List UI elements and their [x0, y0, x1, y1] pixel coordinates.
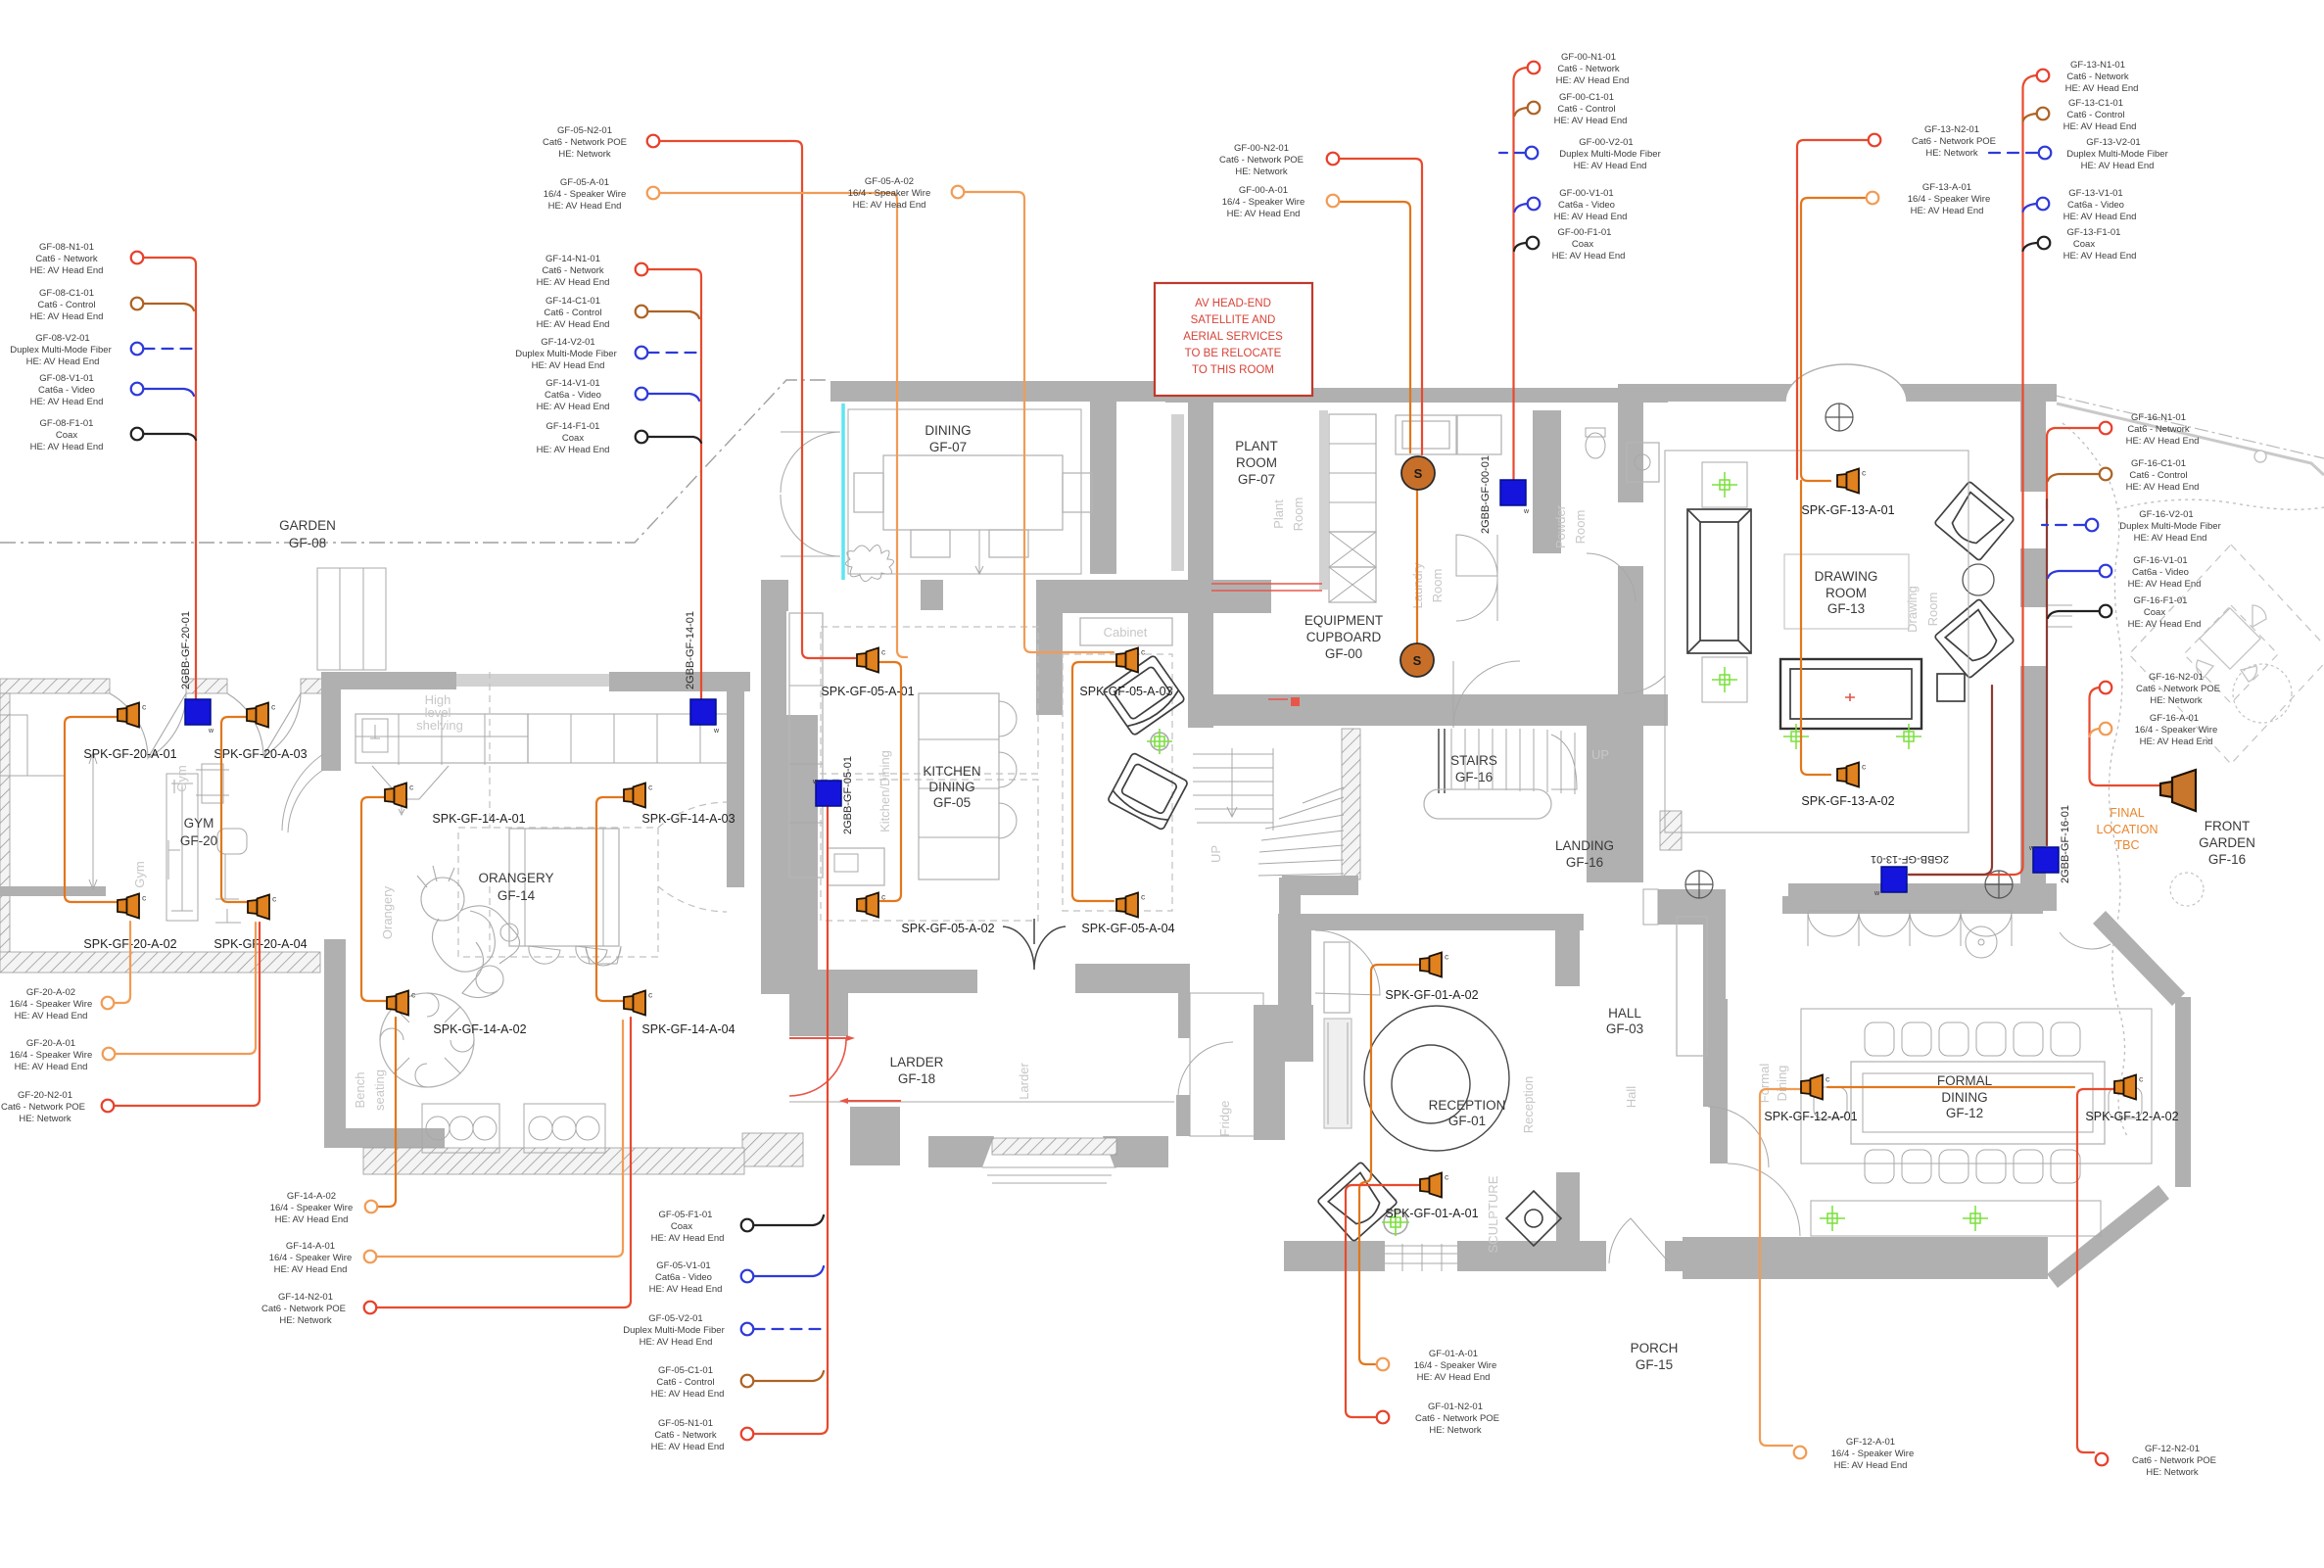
svg-text:TO BE RELOCATE: TO BE RELOCATE: [1185, 348, 1282, 359]
svg-text:shelving: shelving: [416, 718, 463, 733]
svg-text:GF-20-A-02: GF-20-A-02: [26, 987, 75, 998]
svg-text:HE: AV Head End: HE: AV Head End: [2140, 736, 2213, 747]
svg-text:HE: AV Head End: HE: AV Head End: [537, 277, 610, 288]
svg-text:Gym: Gym: [174, 765, 189, 791]
svg-text:SPK-GF-13-A-02: SPK-GF-13-A-02: [1801, 794, 1894, 808]
svg-text:Cat6 - Network POE: Cat6 - Network POE: [1219, 155, 1304, 166]
svg-text:SPK-GF-20-A-01: SPK-GF-20-A-01: [83, 747, 176, 761]
svg-text:Plant: Plant: [1271, 499, 1286, 529]
svg-text:HE: AV Head End: HE: AV Head End: [532, 360, 605, 371]
svg-text:S: S: [1414, 466, 1423, 481]
svg-text:SPK-GF-05-A-02: SPK-GF-05-A-02: [901, 922, 994, 935]
svg-text:GF-05-A-01: GF-05-A-01: [560, 177, 609, 188]
svg-text:GF-15: GF-15: [1636, 1357, 1673, 1372]
svg-text:HE: AV Head End: HE: AV Head End: [275, 1214, 349, 1225]
svg-text:HE: AV Head End: HE: AV Head End: [649, 1284, 723, 1295]
svg-text:GF-13-C1-01: GF-13-C1-01: [2068, 98, 2123, 109]
svg-text:Hall: Hall: [1624, 1086, 1638, 1109]
svg-text:GF-16: GF-16: [1566, 855, 1603, 870]
svg-text:GF-00-V2-01: GF-00-V2-01: [1579, 137, 1633, 148]
svg-text:ROOM: ROOM: [1236, 455, 1277, 470]
svg-text:2GBB-GF-14-01: 2GBB-GF-14-01: [685, 611, 696, 689]
svg-text:16/4 - Speaker Wire: 16/4 - Speaker Wire: [1908, 194, 1990, 205]
svg-text:TO THIS ROOM: TO THIS ROOM: [1192, 364, 1274, 376]
svg-text:ORANGERY: ORANGERY: [478, 871, 553, 885]
svg-text:GF-16-N2-01: GF-16-N2-01: [2149, 672, 2204, 683]
svg-text:HE: AV Head End: HE: AV Head End: [30, 311, 104, 322]
svg-text:Cat6 - Network POE: Cat6 - Network POE: [2132, 1455, 2216, 1466]
svg-text:HE: AV Head End: HE: AV Head End: [1554, 116, 1628, 126]
svg-text:Cat6a - Video: Cat6a - Video: [1558, 200, 1615, 211]
svg-text:GF-12-A-01: GF-12-A-01: [1846, 1437, 1895, 1448]
svg-text:GF-05-N1-01: GF-05-N1-01: [658, 1418, 713, 1429]
svg-text:Cat6 - Network POE: Cat6 - Network POE: [543, 137, 627, 148]
svg-text:GF-20: GF-20: [180, 833, 217, 848]
svg-text:GF-13-N1-01: GF-13-N1-01: [2070, 60, 2125, 71]
svg-text:HE: AV Head End: HE: AV Head End: [853, 200, 926, 211]
svg-text:GF-00-C1-01: GF-00-C1-01: [1559, 92, 1614, 103]
svg-text:HE: AV Head End: HE: AV Head End: [30, 265, 104, 276]
svg-text:HE: AV Head End: HE: AV Head End: [2126, 482, 2200, 493]
svg-text:2GBB-GF-00-01: 2GBB-GF-00-01: [1480, 455, 1492, 534]
svg-text:HE: AV Head End: HE: AV Head End: [30, 397, 104, 407]
svg-text:TBC: TBC: [2115, 838, 2140, 852]
svg-text:Duplex Multi-Mode Fiber: Duplex Multi-Mode Fiber: [2119, 521, 2220, 532]
svg-text:SPK-GF-01-A-01: SPK-GF-01-A-01: [1385, 1207, 1478, 1220]
svg-text:Cat6 - Network POE: Cat6 - Network POE: [1, 1102, 85, 1113]
svg-text:Cabinet: Cabinet: [1104, 625, 1148, 640]
svg-text:GF-16-A-01: GF-16-A-01: [2150, 713, 2199, 724]
svg-text:GF-13-V2-01: GF-13-V2-01: [2086, 137, 2140, 148]
svg-text:Fridge: Fridge: [1217, 1101, 1232, 1137]
svg-text:HE: AV Head End: HE: AV Head End: [537, 319, 610, 330]
svg-text:HE: AV Head End: HE: AV Head End: [1911, 206, 1984, 216]
svg-text:Cat6 - Network: Cat6 - Network: [542, 265, 604, 276]
svg-text:GF-16-N1-01: GF-16-N1-01: [2131, 412, 2186, 423]
svg-text:GF-00-A-01: GF-00-A-01: [1239, 185, 1288, 196]
svg-text:GF-00-V1-01: GF-00-V1-01: [1559, 188, 1613, 199]
svg-text:GF-08-F1-01: GF-08-F1-01: [40, 418, 94, 429]
svg-text:w: w: [812, 779, 819, 785]
svg-text:Coax: Coax: [671, 1221, 692, 1232]
svg-text:GF-12-N2-01: GF-12-N2-01: [2145, 1444, 2200, 1454]
svg-text:HE: Network: HE: Network: [279, 1315, 332, 1326]
svg-text:SPK-GF-12-A-02: SPK-GF-12-A-02: [2085, 1110, 2178, 1123]
svg-text:GF-16: GF-16: [1455, 770, 1493, 784]
svg-text:Coax: Coax: [1572, 239, 1593, 250]
svg-text:16/4 - Speaker Wire: 16/4 - Speaker Wire: [544, 189, 626, 200]
svg-text:SPK-GF-01-A-02: SPK-GF-01-A-02: [1385, 988, 1478, 1002]
svg-text:HE: AV Head End: HE: AV Head End: [2128, 619, 2202, 630]
svg-text:w: w: [1523, 508, 1530, 515]
svg-text:HE: AV Head End: HE: AV Head End: [1574, 161, 1647, 171]
svg-text:Cat6 - Network: Cat6 - Network: [2066, 71, 2129, 82]
svg-text:LANDING: LANDING: [1555, 838, 1614, 853]
svg-text:PLANT: PLANT: [1235, 439, 1278, 453]
svg-text:HE: AV Head End: HE: AV Head End: [1552, 251, 1626, 261]
svg-text:w: w: [2028, 845, 2035, 852]
svg-text:Cat6 - Network: Cat6 - Network: [654, 1430, 717, 1441]
svg-text:Bench: Bench: [353, 1072, 367, 1109]
svg-text:HE: AV Head End: HE: AV Head End: [2063, 212, 2137, 222]
svg-text:GF-16-F1-01: GF-16-F1-01: [2134, 595, 2188, 606]
svg-text:HE: AV Head End: HE: AV Head End: [26, 356, 100, 367]
svg-text:seating: seating: [372, 1069, 387, 1111]
svg-text:GF-08-C1-01: GF-08-C1-01: [39, 288, 94, 299]
svg-text:HE: AV Head End: HE: AV Head End: [1417, 1372, 1491, 1383]
svg-text:GF-07: GF-07: [1238, 472, 1275, 487]
svg-text:GF-05-N2-01: GF-05-N2-01: [557, 125, 612, 136]
svg-text:GF-14: GF-14: [498, 888, 536, 903]
svg-text:GF-14-N2-01: GF-14-N2-01: [278, 1292, 333, 1303]
svg-text:Duplex Multi-Mode Fiber: Duplex Multi-Mode Fiber: [623, 1325, 724, 1336]
svg-text:GF-05-A-02: GF-05-A-02: [865, 176, 914, 187]
svg-text:HALL: HALL: [1608, 1006, 1641, 1021]
svg-text:GF-14-C1-01: GF-14-C1-01: [545, 296, 600, 307]
svg-text:Coax: Coax: [2073, 239, 2095, 250]
svg-text:Coax: Coax: [2144, 607, 2165, 618]
svg-text:Cat6 - Network POE: Cat6 - Network POE: [1912, 136, 1996, 147]
svg-text:GF-12: GF-12: [1946, 1106, 1983, 1120]
svg-text:LOCATION: LOCATION: [2097, 823, 2158, 836]
svg-text:AV HEAD-END: AV HEAD-END: [1195, 298, 1271, 309]
svg-text:GF-14-N1-01: GF-14-N1-01: [545, 254, 600, 264]
svg-text:GF-05-C1-01: GF-05-C1-01: [658, 1365, 713, 1376]
svg-text:DINING: DINING: [928, 780, 974, 794]
svg-text:GF-03: GF-03: [1606, 1022, 1643, 1036]
svg-text:SATELLITE AND: SATELLITE AND: [1191, 314, 1276, 326]
svg-text:HE: Network: HE: Network: [2150, 695, 2203, 706]
svg-text:Room: Room: [1925, 593, 1940, 627]
svg-text:HE: AV Head End: HE: AV Head End: [1834, 1460, 1908, 1471]
svg-text:Cat6 - Network: Cat6 - Network: [2127, 424, 2190, 435]
svg-text:Room: Room: [1291, 498, 1305, 532]
svg-text:Gym: Gym: [132, 861, 147, 887]
svg-text:DRAWING: DRAWING: [1815, 569, 1878, 584]
svg-text:2GBB-GF-16-01: 2GBB-GF-16-01: [2060, 805, 2071, 883]
svg-text:Cat6 - Network: Cat6 - Network: [1557, 64, 1620, 74]
svg-text:LARDER: LARDER: [890, 1055, 944, 1069]
svg-text:GF-01-A-01: GF-01-A-01: [1429, 1349, 1478, 1359]
svg-text:GF-14-F1-01: GF-14-F1-01: [546, 421, 600, 432]
svg-text:HE: AV Head End: HE: AV Head End: [651, 1389, 725, 1400]
svg-text:DINING: DINING: [1941, 1090, 1987, 1105]
svg-text:DINING: DINING: [925, 423, 971, 438]
svg-text:GF-08-N1-01: GF-08-N1-01: [39, 242, 94, 253]
svg-text:16/4 - Speaker Wire: 16/4 - Speaker Wire: [270, 1203, 353, 1213]
svg-text:16/4 - Speaker Wire: 16/4 - Speaker Wire: [269, 1253, 352, 1263]
svg-text:FRONT: FRONT: [2205, 819, 2251, 833]
svg-text:GF-16: GF-16: [2208, 852, 2246, 867]
svg-text:GF-14-V2-01: GF-14-V2-01: [541, 337, 594, 348]
svg-text:GF-08-V2-01: GF-08-V2-01: [35, 333, 89, 344]
svg-text:GF-20-N2-01: GF-20-N2-01: [18, 1090, 72, 1101]
svg-text:HE: Network: HE: Network: [2146, 1467, 2199, 1478]
svg-text:GF-07: GF-07: [929, 440, 967, 454]
svg-text:16/4 - Speaker Wire: 16/4 - Speaker Wire: [1414, 1360, 1496, 1371]
svg-text:Duplex Multi-Mode Fiber: Duplex Multi-Mode Fiber: [515, 349, 616, 359]
svg-text:KITCHEN: KITCHEN: [923, 764, 980, 779]
svg-text:Orangery: Orangery: [380, 885, 395, 939]
svg-text:Cat6 - Control: Cat6 - Control: [2129, 470, 2187, 481]
svg-text:GF-16-C1-01: GF-16-C1-01: [2131, 458, 2186, 469]
svg-text:GARDEN: GARDEN: [279, 518, 336, 533]
svg-text:GF-13: GF-13: [1827, 601, 1865, 616]
svg-text:16/4 - Speaker Wire: 16/4 - Speaker Wire: [10, 1050, 92, 1061]
svg-text:16/4 - Speaker Wire: 16/4 - Speaker Wire: [848, 188, 930, 199]
svg-text:HE: AV Head End: HE: AV Head End: [15, 1011, 88, 1022]
svg-text:GF-13-A-01: GF-13-A-01: [1922, 182, 1971, 193]
svg-text:Room: Room: [1573, 510, 1588, 545]
svg-text:HE: Network: HE: Network: [1925, 148, 1978, 159]
svg-text:GF-13-F1-01: GF-13-F1-01: [2067, 227, 2121, 238]
svg-text:HE: AV Head End: HE: AV Head End: [1554, 212, 1628, 222]
svg-text:ROOM: ROOM: [1826, 586, 1867, 600]
svg-text:HE: AV Head End: HE: AV Head End: [2065, 83, 2139, 94]
svg-text:HE: AV Head End: HE: AV Head End: [2063, 121, 2137, 132]
svg-text:HE: AV Head End: HE: AV Head End: [548, 201, 622, 212]
svg-text:HE: Network: HE: Network: [1235, 166, 1288, 177]
svg-text:GF-16-V1-01: GF-16-V1-01: [2133, 555, 2187, 566]
svg-text:FORMAL: FORMAL: [1937, 1073, 1993, 1088]
svg-text:SPK-GF-14-A-04: SPK-GF-14-A-04: [641, 1022, 735, 1036]
svg-text:GARDEN: GARDEN: [2199, 835, 2255, 850]
svg-text:Cat6 - Network POE: Cat6 - Network POE: [1415, 1413, 1499, 1424]
svg-text:Cat6a - Video: Cat6a - Video: [545, 390, 601, 401]
svg-text:Cat6a - Video: Cat6a - Video: [2067, 200, 2124, 211]
svg-text:Room: Room: [1430, 569, 1445, 603]
svg-text:STAIRS: STAIRS: [1450, 753, 1497, 768]
svg-text:Coax: Coax: [56, 430, 77, 441]
svg-text:2GBB-GF-05-01: 2GBB-GF-05-01: [842, 756, 854, 834]
svg-text:GF-00-N1-01: GF-00-N1-01: [1561, 52, 1616, 63]
svg-text:Cat6 - Control: Cat6 - Control: [1557, 104, 1615, 115]
svg-text:HE: AV Head End: HE: AV Head End: [2128, 579, 2202, 590]
svg-text:HE: AV Head End: HE: AV Head End: [1227, 209, 1301, 219]
svg-text:HE: AV Head End: HE: AV Head End: [651, 1233, 725, 1244]
svg-text:GF-16-V2-01: GF-16-V2-01: [2139, 509, 2193, 520]
svg-text:16/4 - Speaker Wire: 16/4 - Speaker Wire: [2135, 725, 2217, 736]
svg-text:SPK-GF-14-A-02: SPK-GF-14-A-02: [433, 1022, 526, 1036]
svg-text:HE: AV Head End: HE: AV Head End: [2081, 161, 2155, 171]
svg-text:HE: AV Head End: HE: AV Head End: [2063, 251, 2137, 261]
svg-text:GF-18: GF-18: [898, 1071, 935, 1086]
svg-text:HE: AV Head End: HE: AV Head End: [651, 1442, 725, 1452]
svg-text:HE: Network: HE: Network: [19, 1114, 71, 1124]
svg-text:GYM: GYM: [184, 816, 214, 831]
svg-text:HE: AV Head End: HE: AV Head End: [537, 402, 610, 412]
svg-text:FINAL: FINAL: [2110, 806, 2144, 820]
svg-text:Cat6 - Control: Cat6 - Control: [544, 308, 601, 318]
svg-text:GF-13-V1-01: GF-13-V1-01: [2068, 188, 2122, 199]
svg-text:HE: AV Head End: HE: AV Head End: [30, 442, 104, 452]
svg-text:HE: AV Head End: HE: AV Head End: [15, 1062, 88, 1072]
svg-text:HE: AV Head End: HE: AV Head End: [274, 1264, 348, 1275]
svg-text:GF-05-V2-01: GF-05-V2-01: [648, 1313, 702, 1324]
svg-text:RECEPTION: RECEPTION: [1429, 1098, 1506, 1113]
svg-text:SPK-GF-05-A-04: SPK-GF-05-A-04: [1081, 922, 1174, 935]
svg-text:Dining: Dining: [1775, 1066, 1789, 1102]
svg-text:Duplex Multi-Mode Fiber: Duplex Multi-Mode Fiber: [1559, 149, 1660, 160]
svg-text:PORCH: PORCH: [1631, 1341, 1679, 1355]
svg-text:GF-08-V1-01: GF-08-V1-01: [39, 373, 93, 384]
svg-text:UP: UP: [1209, 845, 1223, 863]
svg-text:AERIAL SERVICES: AERIAL SERVICES: [1183, 331, 1283, 343]
svg-text:UP: UP: [1591, 747, 1609, 762]
svg-text:SPK-GF-12-A-01: SPK-GF-12-A-01: [1764, 1110, 1857, 1123]
svg-text:2GBB-GF-13-01: 2GBB-GF-13-01: [1871, 853, 1949, 865]
svg-text:Cat6a - Video: Cat6a - Video: [655, 1272, 712, 1283]
svg-text:Drawing: Drawing: [1905, 586, 1920, 633]
svg-text:w: w: [713, 728, 720, 735]
svg-text:Cat6a - Video: Cat6a - Video: [2132, 567, 2189, 578]
svg-text:GF-01: GF-01: [1448, 1114, 1486, 1128]
svg-text:Kitchen/Dining: Kitchen/Dining: [877, 750, 892, 832]
svg-text:HE: AV Head End: HE: AV Head End: [1556, 75, 1630, 86]
svg-text:GF-14-A-02: GF-14-A-02: [287, 1191, 336, 1202]
svg-text:HE: AV Head End: HE: AV Head End: [2126, 436, 2200, 447]
svg-text:Duplex Multi-Mode Fiber: Duplex Multi-Mode Fiber: [10, 345, 111, 356]
svg-text:HE: AV Head End: HE: AV Head End: [640, 1337, 713, 1348]
svg-text:GF-00-N2-01: GF-00-N2-01: [1234, 143, 1289, 154]
svg-text:Cat6 - Control: Cat6 - Control: [2066, 110, 2124, 120]
svg-text:S: S: [1413, 653, 1422, 668]
svg-text:GF-05-F1-01: GF-05-F1-01: [659, 1210, 713, 1220]
svg-text:HE: AV Head End: HE: AV Head End: [2134, 533, 2207, 544]
svg-text:Coax: Coax: [562, 433, 584, 444]
svg-text:w: w: [208, 728, 214, 735]
svg-text:GF-13-N2-01: GF-13-N2-01: [1924, 124, 1979, 135]
svg-text:GF-14-V1-01: GF-14-V1-01: [545, 378, 599, 389]
svg-text:Larder: Larder: [1017, 1063, 1031, 1100]
svg-text:16/4 - Speaker Wire: 16/4 - Speaker Wire: [1831, 1449, 1914, 1459]
svg-text:SPK-GF-20-A-03: SPK-GF-20-A-03: [213, 747, 307, 761]
svg-text:Cat6 - Control: Cat6 - Control: [656, 1377, 714, 1388]
svg-text:w: w: [1873, 890, 1880, 897]
svg-text:GF-01-N2-01: GF-01-N2-01: [1428, 1402, 1483, 1412]
svg-text:Cat6 - Network: Cat6 - Network: [35, 254, 98, 264]
svg-text:GF-14-A-01: GF-14-A-01: [286, 1241, 335, 1252]
svg-text:Powder: Powder: [1553, 504, 1568, 548]
svg-text:2GBB-GF-20-01: 2GBB-GF-20-01: [180, 611, 192, 689]
svg-text:16/4 - Speaker Wire: 16/4 - Speaker Wire: [10, 999, 92, 1010]
svg-text:HE: Network: HE: Network: [558, 149, 611, 160]
svg-text:CUPBOARD: CUPBOARD: [1306, 630, 1382, 644]
svg-text:SPK-GF-14-A-03: SPK-GF-14-A-03: [641, 812, 735, 826]
svg-text:HE: AV Head End: HE: AV Head End: [537, 445, 610, 455]
svg-text:Reception: Reception: [1521, 1076, 1536, 1134]
svg-text:16/4 - Speaker Wire: 16/4 - Speaker Wire: [1222, 197, 1304, 208]
svg-text:EQUIPMENT: EQUIPMENT: [1304, 613, 1383, 628]
svg-text:Cat6 - Network POE: Cat6 - Network POE: [2136, 684, 2220, 694]
svg-text:Cat6 - Network POE: Cat6 - Network POE: [261, 1304, 346, 1314]
svg-text:GF-05: GF-05: [933, 795, 971, 810]
svg-text:Cat6 - Control: Cat6 - Control: [37, 300, 95, 310]
svg-text:GF-05-V1-01: GF-05-V1-01: [656, 1260, 710, 1271]
svg-text:GF-20-A-01: GF-20-A-01: [26, 1038, 75, 1049]
svg-text:SPK-GF-05-A-03: SPK-GF-05-A-03: [1079, 685, 1172, 698]
svg-text:GF-08: GF-08: [289, 536, 326, 550]
svg-text:SCULPTURE: SCULPTURE: [1486, 1175, 1500, 1253]
svg-text:Duplex Multi-Mode Fiber: Duplex Multi-Mode Fiber: [2066, 149, 2167, 160]
svg-text:SPK-GF-14-A-01: SPK-GF-14-A-01: [432, 812, 525, 826]
svg-text:Cat6a - Video: Cat6a - Video: [38, 385, 95, 396]
svg-text:GF-00: GF-00: [1325, 646, 1362, 661]
svg-text:HE: Network: HE: Network: [1429, 1425, 1482, 1436]
svg-text:GF-00-F1-01: GF-00-F1-01: [1558, 227, 1612, 238]
svg-text:SPK-GF-13-A-01: SPK-GF-13-A-01: [1801, 503, 1894, 517]
